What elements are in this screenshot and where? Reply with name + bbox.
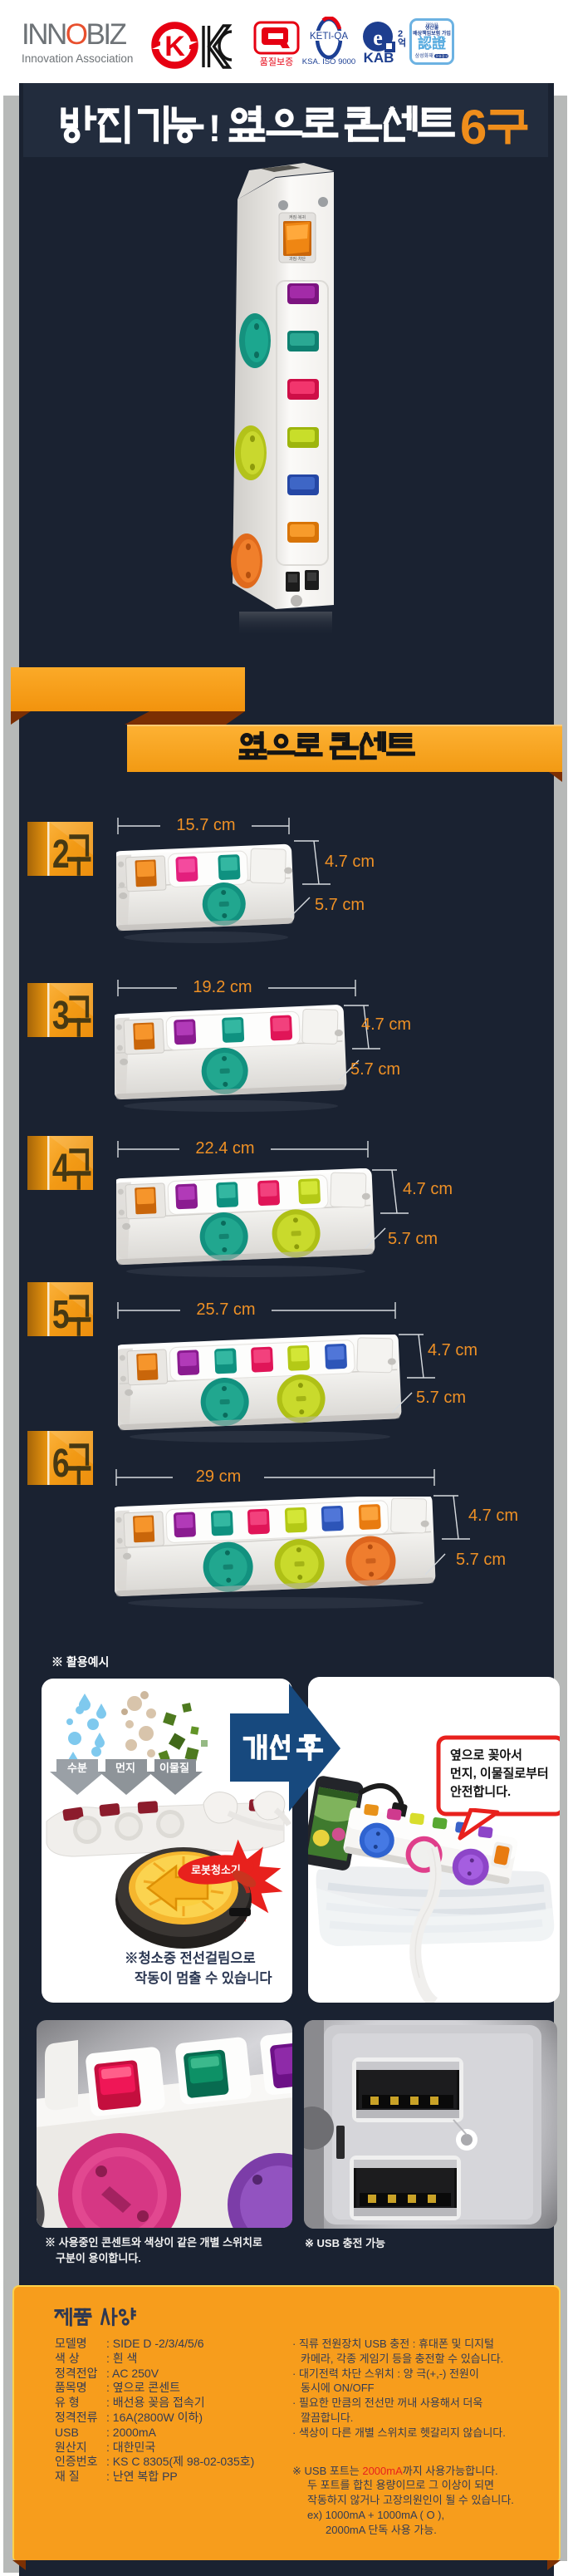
- svg-text:※청소중 전선걸림으로: ※청소중 전선걸림으로: [125, 1949, 256, 1966]
- svg-text:작동이 멈출 수 있습니다: 작동이 멈출 수 있습니다: [135, 1970, 272, 1986]
